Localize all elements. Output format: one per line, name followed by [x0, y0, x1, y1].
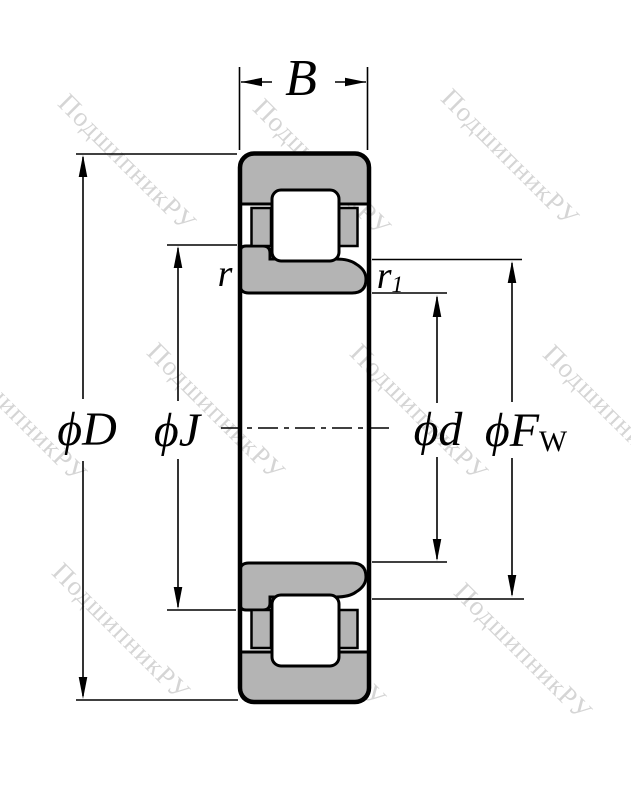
- dimension-label-outer-diameter: ϕD: [57, 406, 117, 454]
- chamfer-r1-main: r: [377, 255, 392, 297]
- label-chamfer-r1: r1: [377, 257, 404, 295]
- dimension-label-bore-diameter: ϕd: [414, 406, 463, 454]
- cage-bar-bottom-right: [338, 610, 358, 648]
- raceway-label-subscript: W: [539, 425, 567, 458]
- bearing-dimension-diagram: ПодшипникРУ ПодшипникРУ ПодшипникРУ Подш…: [0, 0, 631, 792]
- arrow-d-bore-bottom: [433, 539, 442, 561]
- arrow-fw-bottom: [508, 575, 517, 597]
- roller-bottom: [272, 595, 339, 666]
- roller-top: [272, 190, 339, 261]
- dimension-label-raceway-diameter: ϕFW: [485, 407, 567, 455]
- label-chamfer-r: r: [218, 255, 233, 293]
- arrow-d-outer-top: [79, 155, 88, 177]
- cage-bar-bottom-left: [252, 610, 272, 648]
- cage-bar-top-right: [338, 208, 358, 246]
- arrow-d-bore-top: [433, 295, 442, 317]
- arrow-j-top: [174, 246, 183, 268]
- arrow-b-left: [241, 78, 262, 86]
- arrow-d-outer-bottom: [79, 677, 88, 699]
- dimension-label-width-b: B: [285, 53, 317, 105]
- arrow-fw-top: [508, 261, 517, 283]
- chamfer-r1-subscript: 1: [392, 272, 404, 298]
- raceway-label-main: ϕF: [485, 404, 539, 457]
- cage-bar-top-left: [252, 208, 272, 246]
- dimension-label-flange-diameter: ϕJ: [154, 407, 200, 455]
- bearing-cross-section-drawing: [0, 0, 631, 792]
- arrow-j-bottom: [174, 587, 183, 609]
- arrow-b-right: [345, 78, 366, 86]
